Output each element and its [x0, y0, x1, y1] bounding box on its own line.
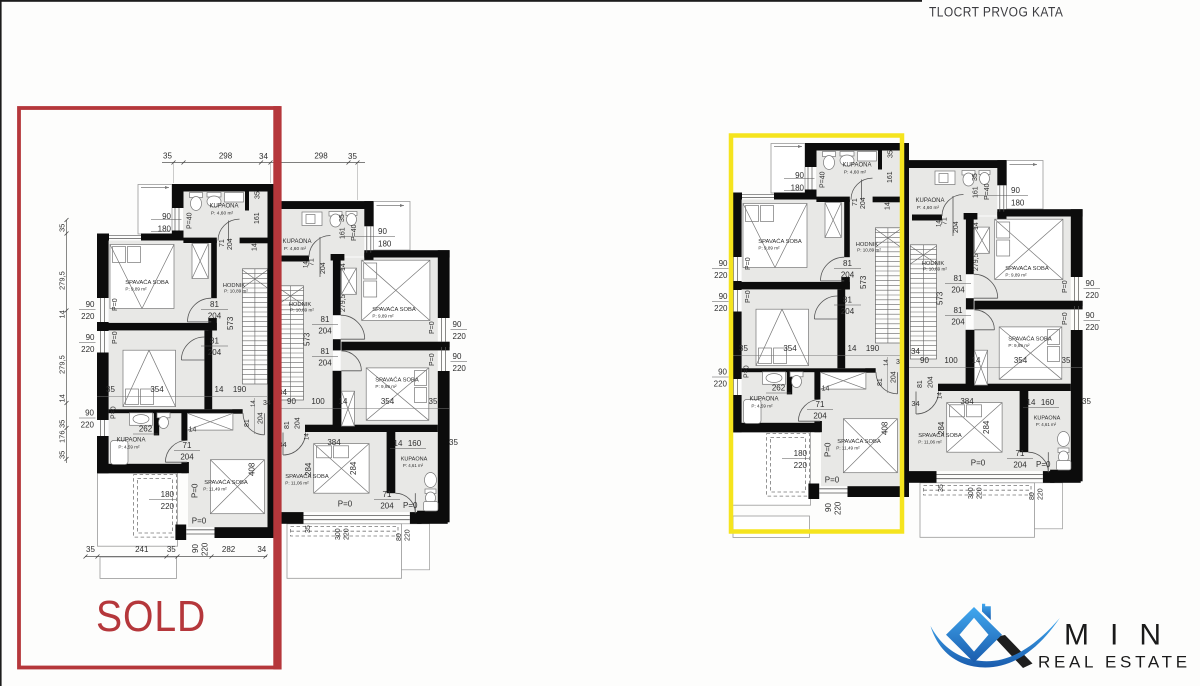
svg-text:279,5: 279,5	[58, 271, 67, 290]
svg-text:35: 35	[58, 451, 67, 459]
svg-text:35: 35	[58, 224, 67, 232]
svg-text:35: 35	[163, 152, 172, 161]
svg-text:282: 282	[222, 545, 236, 554]
svg-text:14: 14	[58, 394, 67, 402]
svg-text:176: 176	[58, 430, 67, 443]
svg-text:34: 34	[257, 545, 266, 554]
svg-text:MIN: MIN	[1064, 619, 1182, 652]
svg-text:241: 241	[135, 545, 149, 554]
svg-text:34: 34	[259, 152, 268, 161]
svg-text:279,5: 279,5	[58, 355, 67, 374]
svg-text:SOLD: SOLD	[96, 592, 206, 640]
svg-text:35: 35	[167, 545, 176, 554]
svg-text:35: 35	[58, 420, 67, 428]
svg-text:298: 298	[314, 152, 328, 161]
svg-text:TLOCRT PRVOG KATA: TLOCRT PRVOG KATA	[929, 4, 1063, 20]
svg-text:35: 35	[348, 152, 357, 161]
svg-text:298: 298	[219, 152, 233, 161]
svg-text:REAL ESTATE: REAL ESTATE	[1038, 653, 1191, 672]
svg-text:35: 35	[86, 545, 95, 554]
